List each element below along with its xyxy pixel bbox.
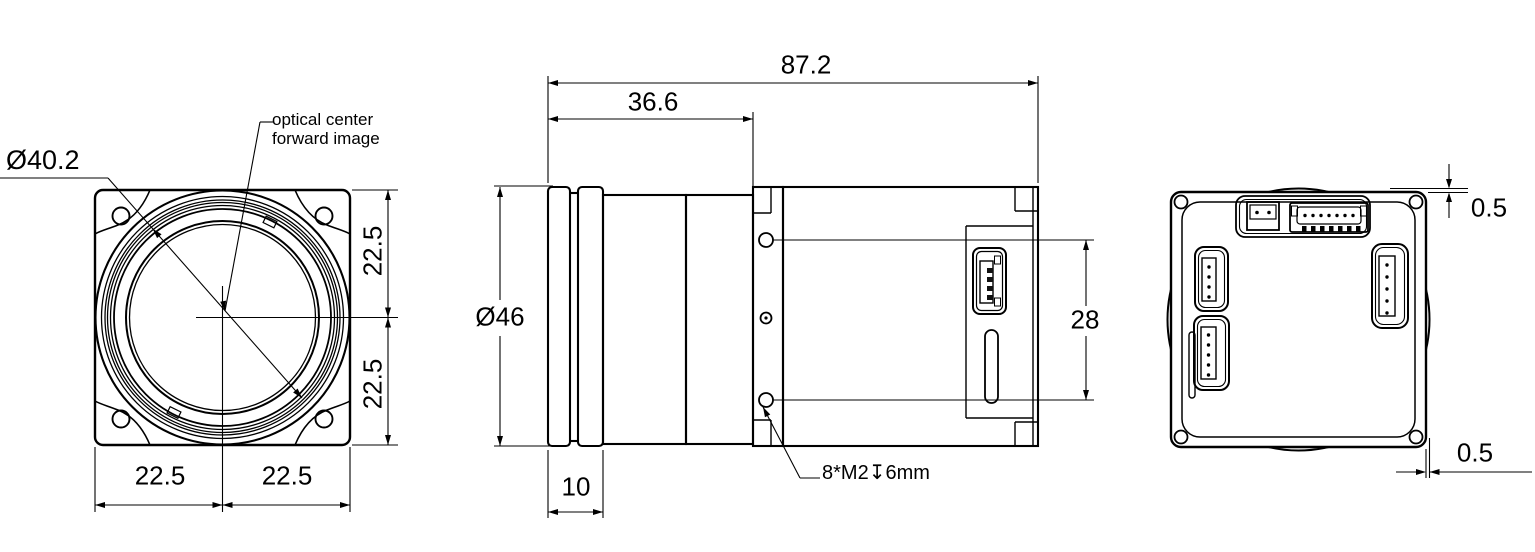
optical-center-note-line1: optical center: [272, 111, 373, 129]
lens-adapter: [686, 195, 753, 444]
card-slot-side: [985, 330, 998, 403]
side-dim-hole-span: 28: [1071, 306, 1100, 333]
lens-front-ring: [548, 187, 570, 446]
m2-mounting-holes: [759, 233, 773, 407]
front-dim-right-upper: 22.5: [359, 226, 386, 277]
usb-connector-side: [973, 248, 1006, 314]
front-dim-bottom-right: 22.5: [262, 462, 313, 489]
side-dim-overall-length: 87.2: [781, 51, 832, 78]
front-diameter-label: Ø40.2: [6, 146, 80, 174]
front-dim-right-lower: 22.5: [359, 359, 386, 410]
back-dim-side-protrusion: 0.5: [1457, 439, 1493, 466]
technical-drawing: [0, 0, 1535, 552]
side-dim-front-section: 36.6: [628, 88, 679, 115]
back-dim-top-protrusion: 0.5: [1471, 194, 1507, 221]
front-dim-bottom-left: 22.5: [135, 462, 186, 489]
side-view-drawing: [548, 187, 1038, 446]
back-view-drawing: [1168, 189, 1430, 451]
thread-callout-label: 8*M2↧6mm: [822, 463, 930, 484]
lens-second-ring: [578, 187, 603, 446]
side-view-dimensions: [494, 76, 1094, 518]
optical-center-note-line2: forward image: [272, 130, 380, 148]
side-lens-diameter-label: Ø46: [475, 303, 524, 330]
lens-barrel: [603, 195, 686, 444]
drawing-canvas: Ø40.2 optical center forward image 22.5 …: [0, 0, 1535, 552]
side-dim-ring-width: 10: [562, 473, 591, 500]
